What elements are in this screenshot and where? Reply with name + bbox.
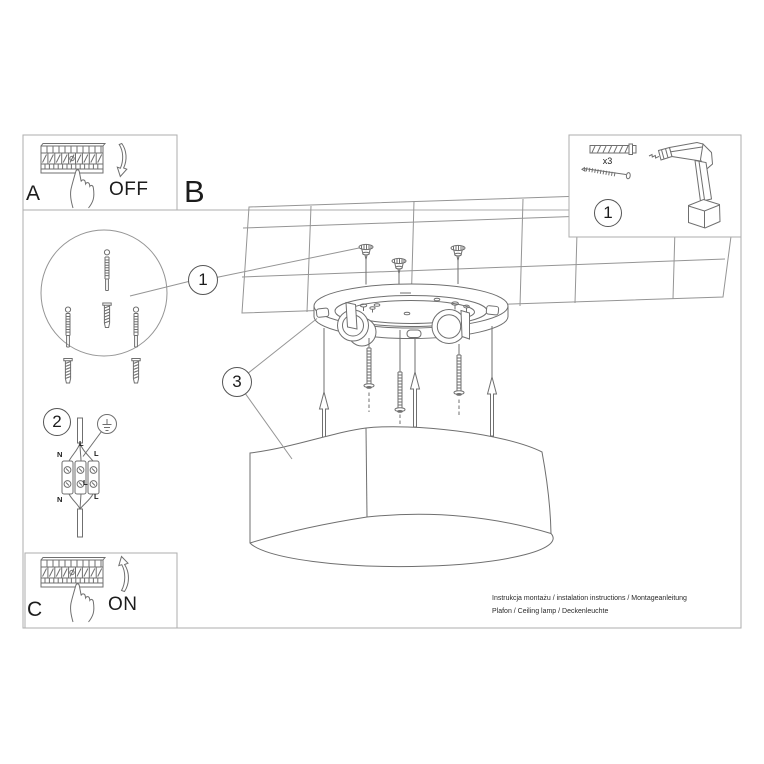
panel-c-letter: C [27,598,42,622]
footer-line-2: Plafon / Ceiling lamp / Deckenleuchte [492,606,687,619]
wiring-cable-live-label: L [79,439,84,448]
callout-anchors-number: 1 [189,266,218,295]
anchors-detail-items [64,250,140,383]
lamp-shade [250,427,553,567]
footer-line-1: Instrukcja montażu / instalation instruc… [492,593,687,606]
line-art [0,0,764,764]
wiring-top-live-label: L [94,449,99,458]
panel-a-letter: A [26,182,40,206]
callout-circles [44,266,252,436]
callout-shade-number: 3 [223,368,252,397]
wiring-bottom-neutral-label: N [57,495,62,504]
panel-c-state-label: ON [108,594,138,616]
callout-wiring-number: 2 [44,409,71,436]
panel-a-state-label: OFF [109,179,149,201]
footer-title: Instrukcja montażu / instalation instruc… [492,593,687,618]
wiring-center-live-label: L [83,478,88,487]
anchor-count-label: x3 [595,156,620,166]
anchors-detail [41,230,167,356]
section-b-label: B [184,174,205,210]
wiring-bottom-live-label: L [94,492,99,501]
wiring-top-neutral-label: N [57,450,62,459]
instruction-sheet: A OFF B x3 1 1 2 3 N L L L N L C ON Inst… [0,0,764,764]
parts-step-number: 1 [595,200,622,227]
